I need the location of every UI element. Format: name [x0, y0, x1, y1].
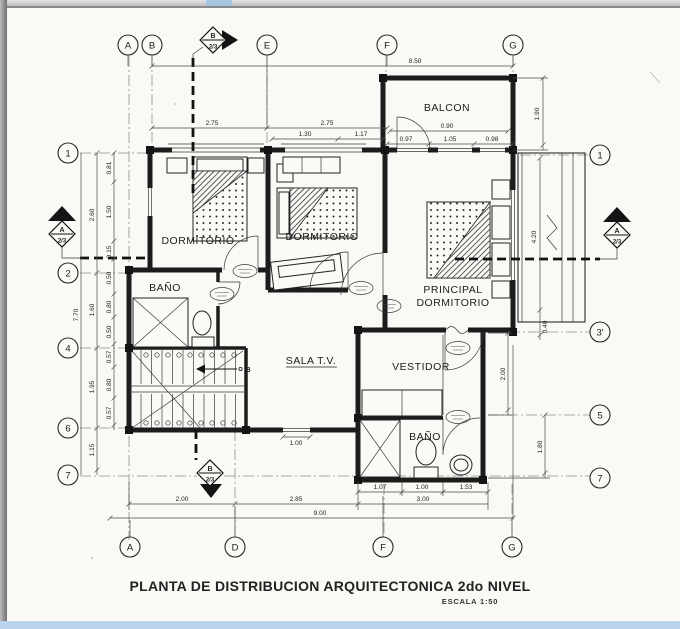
door-tag — [210, 288, 234, 301]
svg-text:F: F — [384, 41, 390, 52]
grid-bubble-right-1: 1 — [590, 145, 610, 165]
dim-win1: 1.30 — [299, 131, 312, 138]
section-marker-left-a: A 2/3 — [48, 206, 80, 258]
grid-bubble-bottom-g: G — [502, 537, 522, 557]
grid-bubble-right-3p: 3' — [590, 322, 610, 342]
dim-left-total: 7.70 — [73, 308, 80, 321]
svg-text:6: 6 — [65, 424, 70, 435]
dim-bal3: 0.98 — [486, 136, 499, 143]
room-label-principal-2: DORMITORIO — [416, 297, 489, 309]
grid-bubble-left-7: 7 — [58, 465, 78, 485]
svg-text:B: B — [149, 41, 155, 52]
dim-win2: 1.17 — [355, 131, 368, 138]
floor-plan-document: { "title": { "main": "PLANTA DE DISTRIBU… — [0, 0, 680, 629]
door-tag — [446, 342, 470, 355]
section-marker-right-a: A 2/3 — [600, 207, 631, 259]
dim-l5: 0.80 — [106, 300, 113, 313]
dim-top-total: 8.50 — [409, 58, 422, 65]
svg-text:D: D — [232, 543, 239, 554]
dim-roof-len: 4.20 — [531, 230, 538, 243]
grid-bubble-bottom-d: D — [225, 537, 245, 557]
svg-text:A: A — [127, 543, 134, 554]
door-tag — [446, 411, 470, 424]
room-label-dormitorio-2: DORMITORIO — [285, 231, 358, 243]
window-left-edge — [0, 0, 7, 629]
dim-bottom-total: 9.00 — [314, 510, 327, 517]
window-bottom-bar — [0, 621, 680, 629]
room-label-balcon: BALCON — [424, 102, 470, 114]
svg-text:2/3: 2/3 — [206, 478, 215, 484]
section-marker-bottom-b: B 2/3 — [197, 460, 223, 498]
dim-bath1: 1.07 — [374, 484, 387, 491]
svg-text:1: 1 — [597, 151, 602, 162]
dim-roof-end: 0.40 — [542, 320, 549, 333]
bathroom1-fixtures — [133, 298, 214, 347]
svg-text:4: 4 — [65, 344, 70, 355]
door-tag — [377, 300, 401, 313]
grid-bubble-right-7: 7 — [590, 468, 610, 488]
room-label-sala-tv: SALA T.V. — [286, 355, 337, 367]
dim-bot-d-f: 2.85 — [290, 496, 303, 503]
grid-bubbles: A B E F G A D F G 1 2 4 6 7 1 3' 5 7 — [58, 35, 610, 557]
grid-bubble-top-g: G — [503, 35, 523, 55]
floor-plan-drawing: B — [0, 0, 680, 629]
svg-text:A: A — [59, 227, 64, 234]
dim-l9: 0.57 — [106, 406, 113, 419]
dim-l2: 1.50 — [106, 205, 113, 218]
drawing-scale: ESCALA 1:50 — [410, 597, 530, 606]
staircase: B — [129, 350, 251, 460]
dim-bath2: 1.00 — [416, 484, 429, 491]
svg-text:7: 7 — [597, 474, 602, 485]
dim-l3: 0.15 — [106, 245, 113, 258]
dim-l6: 0.50 — [106, 325, 113, 338]
room-label-bano-2: BAÑO — [409, 430, 441, 443]
svg-text:2/3: 2/3 — [209, 45, 218, 51]
svg-text:F: F — [380, 543, 386, 554]
svg-text:2/3: 2/3 — [613, 240, 622, 246]
section-marker-top-b: B 2/3 — [193, 27, 238, 58]
grid-bubble-top-a: A — [118, 35, 138, 55]
drawing-title: PLANTA DE DISTRIBUCION ARQUITECTONICA 2d… — [0, 578, 660, 594]
dim-balcon-width: 0.90 — [441, 123, 454, 130]
roof-strip — [518, 153, 585, 322]
dim-bath-total: 3.00 — [417, 496, 430, 503]
dim-bal1: 0.97 — [400, 136, 413, 143]
svg-text:A: A — [125, 41, 132, 52]
dim-bath3: 1.53 — [460, 484, 473, 491]
dim-l8: 0.80 — [106, 378, 113, 391]
bathroom2-fixtures — [360, 420, 472, 478]
dim-sala-window: 1.00 — [290, 440, 303, 447]
grid-bubble-top-f: F — [377, 35, 397, 55]
stair-direction-arrow: B — [196, 365, 251, 375]
room-label-dormitorio-1: DORMITORIO — [161, 235, 234, 247]
dim-vest-h: 2.00 — [500, 367, 507, 380]
svg-text:G: G — [509, 41, 516, 52]
room-label-vestidor: VESTIDOR — [392, 361, 450, 373]
dim-span-e-f: 2.75 — [321, 120, 334, 127]
grid-bubble-bottom-a: A — [120, 537, 140, 557]
dim-span-b-e: 2.75 — [206, 120, 219, 127]
tv-cabinet — [271, 254, 344, 290]
svg-text:2/3: 2/3 — [58, 239, 67, 245]
window-top-edge — [0, 0, 680, 8]
dorm2-closet — [283, 157, 340, 173]
grid-bubble-left-4: 4 — [58, 338, 78, 358]
dim-right-5-7: 1.80 — [537, 440, 544, 453]
svg-text:B: B — [210, 33, 215, 40]
dimension-lines — [81, 55, 550, 537]
grid-bubble-left-6: 6 — [58, 418, 78, 438]
dim-bal2: 1.05 — [444, 136, 457, 143]
dim-l7: 0.57 — [106, 350, 113, 363]
bed-dormitorio-1 — [167, 157, 264, 241]
grid-bubble-top-e: E — [257, 35, 277, 55]
dim-l1: 0.81 — [106, 161, 113, 174]
bed-dormitorio-2 — [277, 164, 357, 238]
stair-direction-label: B — [245, 367, 250, 374]
svg-text:1: 1 — [65, 149, 70, 160]
svg-text:G: G — [508, 543, 515, 554]
dim-l4: 0.50 — [106, 271, 113, 284]
dim-left-2-4: 1.60 — [89, 303, 96, 316]
grid-bubble-left-1: 1 — [58, 143, 78, 163]
grid-bubble-left-2: 2 — [58, 263, 78, 283]
room-label-principal-1: PRINCIPAL — [423, 284, 482, 296]
grid-bubble-right-5: 5 — [590, 405, 610, 425]
svg-text:B: B — [207, 466, 212, 473]
svg-text:2: 2 — [65, 269, 70, 280]
svg-text:E: E — [264, 41, 270, 52]
vestidor-cabinet — [362, 390, 442, 416]
svg-text:7: 7 — [65, 471, 70, 482]
svg-text:5: 5 — [597, 411, 602, 422]
svg-text:3': 3' — [596, 328, 603, 339]
door-tag — [349, 282, 373, 295]
grid-bubble-top-b: B — [142, 35, 162, 55]
window-top-tab — [206, 0, 232, 6]
dim-balcon-depth: 1.90 — [534, 107, 541, 120]
dim-left-4-6: 1.95 — [89, 380, 96, 393]
bed-principal — [427, 180, 510, 298]
grid-bubble-bottom-f: F — [373, 537, 393, 557]
svg-text:A: A — [614, 228, 619, 235]
room-label-bano-1: BAÑO — [149, 281, 181, 294]
dim-left-1-2: 2.60 — [89, 208, 96, 221]
dim-bot-a-d: 2.00 — [176, 496, 189, 503]
door-tag — [233, 265, 257, 278]
dim-left-6-7: 1.15 — [89, 443, 96, 456]
